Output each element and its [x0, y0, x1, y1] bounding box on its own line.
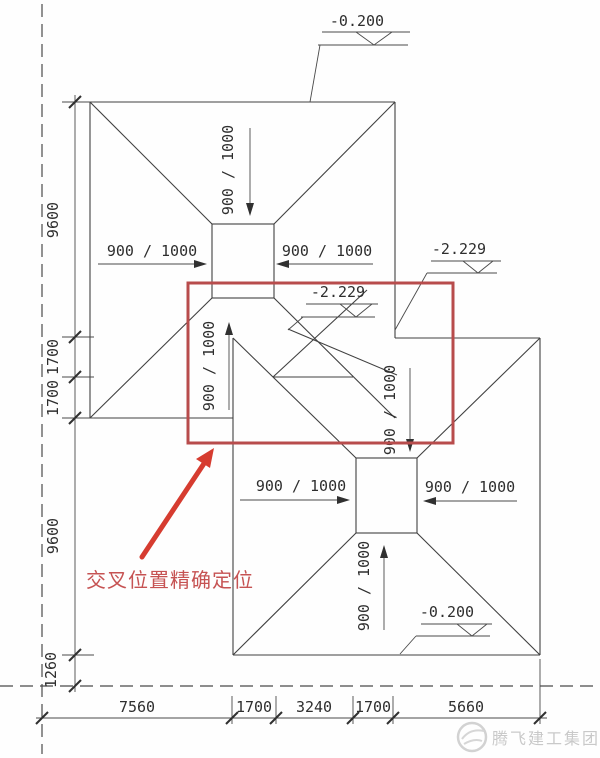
arrow-left-icon — [276, 260, 289, 268]
watermark: 腾飞建工集团 — [458, 723, 600, 751]
dim-label: 9600 — [44, 518, 62, 554]
excavation-plan-drawing: -0.200 -2.229 -2.229 -0.200 900 / 1000 9… — [0, 0, 600, 758]
callout-arrow — [142, 448, 214, 557]
dimension-chain-bottom: 7560 1700 3240 1700 5660 — [36, 659, 547, 724]
arrow-down-icon — [246, 203, 254, 216]
slope-annotation-a-bottom: 900 / 1000 — [200, 321, 233, 411]
callout-text: 交叉位置精确定位 — [86, 568, 254, 592]
dim-label: 1700 — [44, 380, 62, 416]
dim-label: 3240 — [296, 698, 332, 716]
leader-line — [400, 636, 416, 654]
intersection-lines — [273, 290, 397, 377]
dim-label: 1700 — [236, 698, 272, 716]
arrow-up-icon — [225, 322, 233, 335]
slope-annotation-a-top: 900 / 1000 — [219, 125, 254, 216]
arrow-down-icon — [406, 439, 414, 452]
slope-ratio-label: 900 / 1000 — [107, 242, 197, 260]
watermark-bird-icon — [462, 730, 484, 744]
dim-label: 9600 — [44, 202, 62, 238]
watermark-text: 腾飞建工集团 — [492, 729, 600, 748]
elevation-value: -2.229 — [432, 240, 486, 258]
level-triangle-icon — [463, 261, 493, 273]
slope-annotation-b-bottom: 900 / 1000 — [355, 541, 388, 631]
leader-line — [310, 45, 320, 102]
dim-label: 1700 — [44, 339, 62, 375]
slope-ratio-label: 900 / 1000 — [256, 477, 346, 495]
pit-b-bottom-square — [356, 458, 417, 533]
slope-annotation-b-right: 900 / 1000 — [423, 478, 517, 505]
slope-ratio-label: 900 / 1000 — [282, 242, 372, 260]
elevation-marker-top: -0.200 — [310, 12, 410, 102]
pit-a-outline — [90, 102, 395, 418]
slope-ratio-label: 900 / 1000 — [355, 541, 373, 631]
dim-label: 7560 — [119, 698, 155, 716]
arrow-right-icon — [337, 496, 350, 504]
dim-label: 1700 — [355, 698, 391, 716]
level-triangle-icon — [457, 624, 487, 636]
watermark-logo-icon — [458, 723, 486, 751]
elevation-value: -0.200 — [420, 603, 474, 621]
dimension-chain-left: 9600 1700 1700 9600 1260 — [42, 95, 94, 692]
elevation-marker-outer: -2.229 — [395, 240, 501, 330]
arrow-up-icon — [380, 545, 388, 558]
arrow-left-icon — [423, 497, 436, 505]
highlight-box — [188, 283, 453, 443]
elevation-marker-bottom: -0.200 — [400, 603, 492, 654]
slope-annotation-a-left: 900 / 1000 — [98, 242, 207, 268]
dim-label: 1260 — [42, 652, 60, 688]
slope-annotation-a-right: 900 / 1000 — [276, 242, 373, 268]
slope-ratio-label: 900 / 1000 — [425, 478, 515, 496]
arrow-right-icon — [194, 260, 207, 268]
pit-a-bottom-square — [212, 224, 274, 298]
slope-annotation-b-left: 900 / 1000 — [240, 477, 350, 504]
elevation-value: -2.229 — [311, 283, 365, 301]
slope-ratio-label: 900 / 1000 — [200, 321, 218, 411]
elevation-value: -0.200 — [330, 12, 384, 30]
dim-label: 5660 — [448, 698, 484, 716]
level-triangle-icon — [356, 32, 392, 45]
drawing-canvas: -0.200 -2.229 -2.229 -0.200 900 / 1000 9… — [0, 0, 600, 758]
elevation-marker-inner: -2.229 — [288, 283, 378, 330]
slope-ratio-label: 900 / 1000 — [219, 125, 237, 215]
callout-arrow-shaft — [142, 462, 205, 557]
